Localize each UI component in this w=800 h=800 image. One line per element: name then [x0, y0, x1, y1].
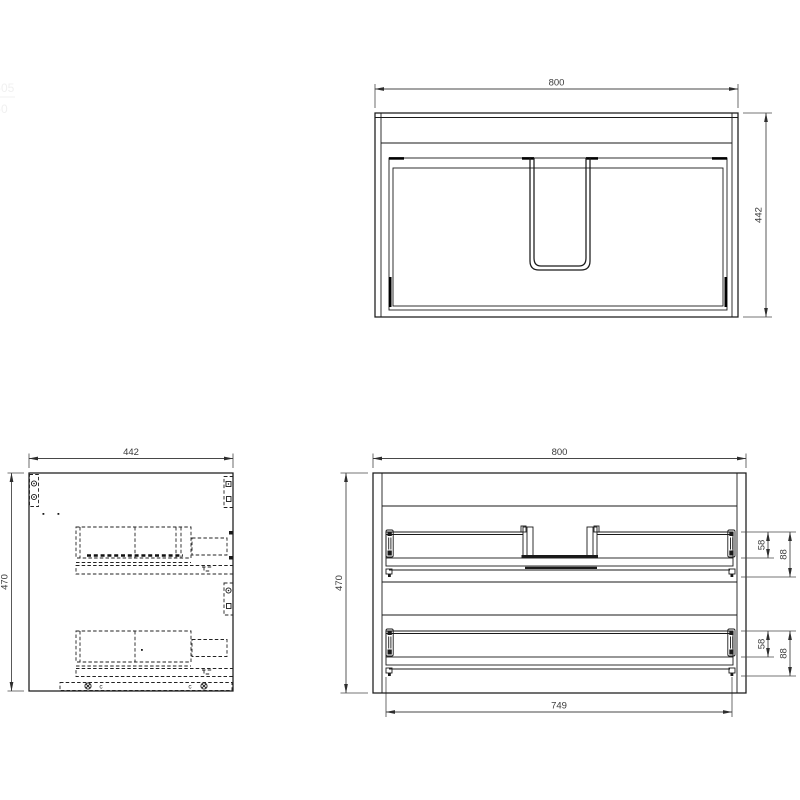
side-fixing-plate-middle-right	[224, 583, 233, 615]
side-hinge-plate-top-left	[30, 475, 39, 507]
upper-drawer-dimensions: 58 88	[741, 532, 796, 577]
back-height-label: 470	[334, 575, 345, 591]
back-height-dimension: 470	[334, 473, 368, 693]
back-width-dimension: 800	[373, 447, 746, 468]
screw-symbol-right	[201, 683, 207, 689]
drawing-canvas: -05 -0 800 442	[0, 0, 800, 800]
edge-fragment-top: -05	[0, 81, 15, 95]
side-marker-left: c	[99, 684, 103, 691]
side-view: 442 470	[0, 447, 233, 691]
screw-symbol-left	[85, 683, 91, 689]
side-marker-right: c	[188, 684, 192, 691]
side-bottom-rail: c c	[60, 683, 232, 691]
back-view: 800 470 749	[334, 447, 796, 717]
page-edge-fragments: -05 -0	[0, 81, 15, 116]
side-panel-outline	[29, 473, 233, 691]
lower-assembly-height-label: 88	[779, 648, 790, 659]
recess-corner-ticks	[389, 158, 727, 307]
plan-cabinet-outline	[375, 113, 738, 317]
plan-view: 800 442	[375, 78, 772, 318]
back-inner-width-label: 749	[551, 701, 567, 712]
side-lower-runner	[76, 631, 233, 677]
countertop-recess-outer	[389, 158, 727, 310]
back-width-label: 800	[552, 447, 568, 458]
upper-drawer-back	[386, 532, 733, 570]
side-width-label: 442	[123, 447, 139, 458]
plan-width-dimension: 800	[375, 78, 738, 109]
sink-cutout	[530, 158, 590, 270]
upper-back-height-label: 58	[757, 540, 768, 551]
lower-drawer-back	[386, 631, 733, 669]
side-width-dimension: 442	[29, 447, 233, 468]
countertop-recess-inner	[393, 168, 723, 306]
edge-fragment-bottom: -0	[0, 102, 8, 116]
lower-back-height-label: 58	[757, 639, 768, 650]
upper-assembly-height-label: 88	[779, 549, 790, 560]
side-height-dimension: 470	[0, 473, 24, 691]
plan-depth-label: 442	[754, 207, 765, 223]
drain-shadow-line	[525, 567, 597, 569]
sink-drain-box	[521, 526, 599, 558]
side-upper-runner	[76, 527, 233, 574]
lower-drawer-dimensions: 58 88	[741, 631, 796, 676]
back-inner-width-dimension: 749	[386, 677, 732, 717]
back-cabinet-outline	[373, 473, 746, 693]
side-hinge-plate-top-right	[224, 477, 233, 508]
side-dowel-marks	[43, 513, 60, 515]
side-height-label: 470	[0, 574, 11, 590]
plan-depth-dimension: 442	[743, 113, 772, 317]
cabinet-technical-drawing: -05 -0 800 442	[0, 0, 800, 800]
plan-width-label: 800	[549, 78, 565, 89]
